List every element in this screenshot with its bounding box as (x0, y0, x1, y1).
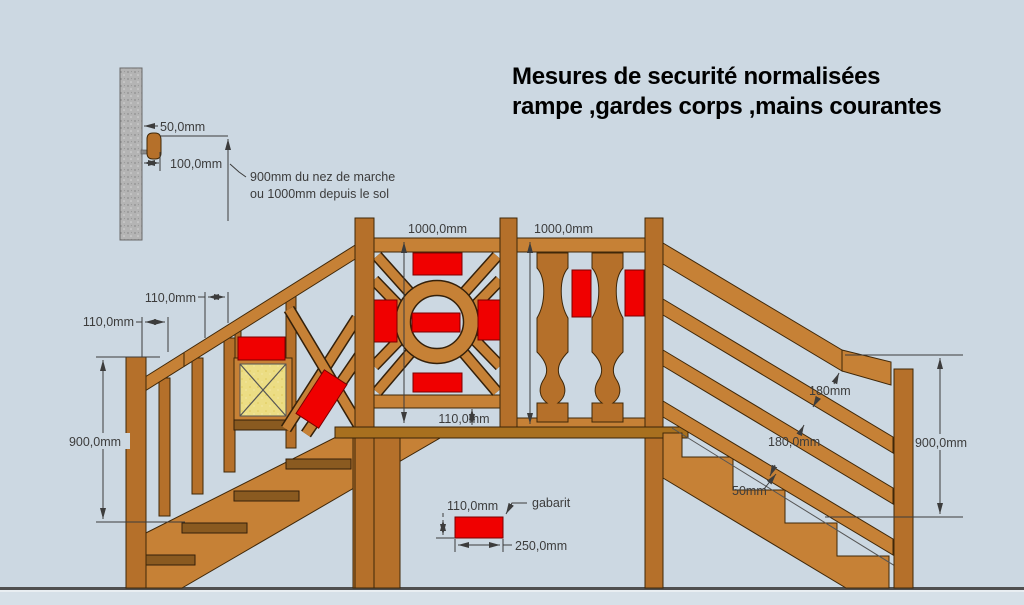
gabarit-sample (455, 517, 503, 538)
legend-width-label: 250,0mm (515, 539, 567, 553)
note-line2: ou 1000mm depuis le sol (250, 187, 389, 201)
rail-gap2-label: 180,0mm (768, 435, 820, 449)
left-handrail-height-label: 900,0mm (69, 435, 121, 449)
title-line1: Mesures de securité normalisées (512, 63, 880, 90)
nosing-gap-label: 50mm (732, 484, 767, 498)
left-gap-lower-label: 110,0mm (83, 315, 134, 329)
gabarit-block (412, 313, 460, 332)
left-gap-upper-label: 110,0mm (145, 291, 196, 305)
guard-post-3 (645, 218, 663, 588)
rail-gap1-label: 180mm (809, 384, 851, 398)
legend-leader (506, 503, 527, 514)
ground-highlight (0, 590, 1024, 592)
legend-label: gabarit (532, 496, 571, 510)
turned-baluster (592, 253, 623, 422)
title-block: Mesures de securité normalisées rampe ,g… (512, 63, 941, 120)
turned-baluster (537, 253, 568, 422)
title-line2: rampe ,gardes corps ,mains courantes (512, 93, 941, 120)
guard-post-1 (355, 218, 374, 588)
legend-height-label: 110,0mm (447, 499, 498, 513)
gabarit-block (625, 270, 644, 316)
gabarit-block (572, 270, 591, 317)
gabarit-block (373, 300, 397, 342)
right-steps-silhouette (663, 433, 889, 588)
note-line1: 900mm du nez de marche (250, 170, 395, 184)
gabarit-block (238, 337, 285, 360)
newel-post (126, 357, 146, 588)
clearance-label: 100,0mm (170, 157, 222, 171)
diagram-svg: Mesures de securité normalisées rampe ,g… (0, 0, 1024, 605)
wall-section (120, 68, 142, 240)
note-leader (230, 164, 246, 177)
landing-floor (335, 427, 688, 438)
stair-safety-diagram: Mesures de securité normalisées rampe ,g… (0, 0, 1024, 605)
wall-handrail-detail: 50,0mm 100,0mm 900mm du nez de marche ou… (120, 68, 395, 240)
right-stair (663, 243, 913, 588)
tread (182, 523, 247, 533)
bottom-gap-label: 110,0mm (438, 412, 489, 426)
right-handrail-height-label: 900,0mm (915, 436, 967, 450)
baluster (192, 358, 203, 494)
gabarit-block (413, 253, 462, 275)
below-ground-strip (0, 592, 1024, 605)
panel1-height-label: 1000,0mm (408, 222, 467, 236)
end-post (894, 369, 913, 588)
gabarit-block (413, 373, 462, 392)
dim-arrow (834, 373, 839, 384)
panel2-height-label: 1000,0mm (534, 222, 593, 236)
baluster (159, 378, 170, 516)
panel1-bottom-rail (374, 395, 500, 408)
tread (234, 491, 299, 501)
handrail-profile (147, 133, 161, 159)
baluster (224, 338, 235, 472)
guard-post-2 (500, 218, 517, 428)
right-handrail (663, 243, 842, 371)
tread (286, 459, 351, 469)
gabarit-legend: 110,0mm gabarit 250,0mm (436, 496, 571, 553)
gabarit-block (478, 300, 502, 340)
ground (0, 587, 1024, 605)
wall-offset-label: 50,0mm (160, 120, 205, 134)
